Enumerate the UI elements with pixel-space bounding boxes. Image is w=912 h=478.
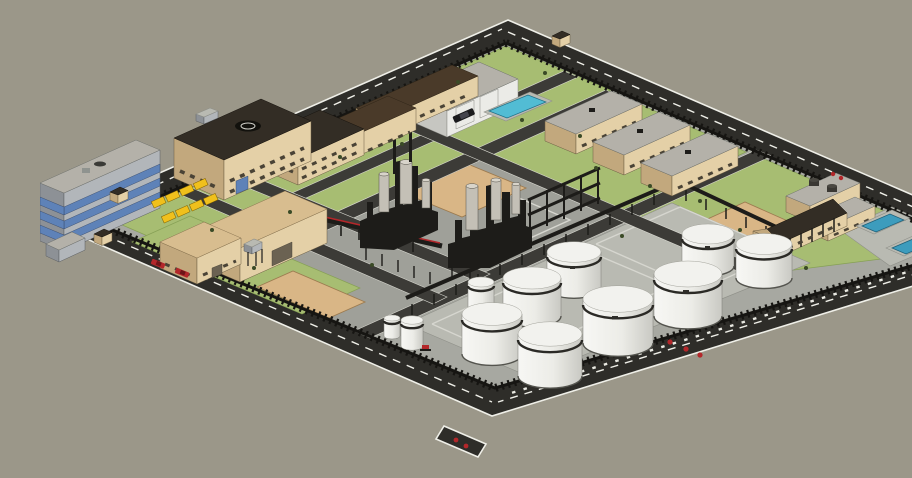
- red-road-unit: [667, 339, 672, 344]
- roof-vent: [94, 162, 106, 167]
- red-road-unit: [683, 346, 688, 351]
- red-road-unit: [831, 172, 835, 176]
- red-road-unit: [839, 176, 843, 180]
- storage-tank: [583, 286, 653, 357]
- storage-tank: [462, 303, 522, 366]
- red-road-unit: [697, 352, 702, 357]
- roof-unit: [685, 150, 691, 154]
- helipad-circle: [235, 121, 261, 132]
- vessel: [400, 162, 412, 204]
- render-canvas[interactable]: [40, 16, 912, 462]
- tank-logo: [705, 246, 710, 249]
- vessel: [466, 186, 478, 230]
- tank-logo: [570, 266, 575, 269]
- tank-logo: [612, 316, 618, 320]
- 3d-site-model-viewport[interactable]: [40, 16, 912, 462]
- storage-tank: [518, 322, 582, 388]
- storage-tank: [736, 234, 792, 289]
- vessel: [512, 184, 520, 214]
- roof-unit: [589, 108, 595, 112]
- vessel: [491, 180, 501, 220]
- red-unit: [454, 438, 459, 443]
- vessel: [422, 180, 430, 208]
- small-tank: [401, 316, 423, 350]
- storage-tank: [654, 261, 722, 329]
- roof-unit: [637, 129, 643, 133]
- roof-unit: [82, 168, 90, 173]
- tank-logo: [683, 290, 689, 294]
- red-unit: [464, 444, 469, 449]
- small-tank: [384, 315, 400, 339]
- vessel: [379, 174, 389, 212]
